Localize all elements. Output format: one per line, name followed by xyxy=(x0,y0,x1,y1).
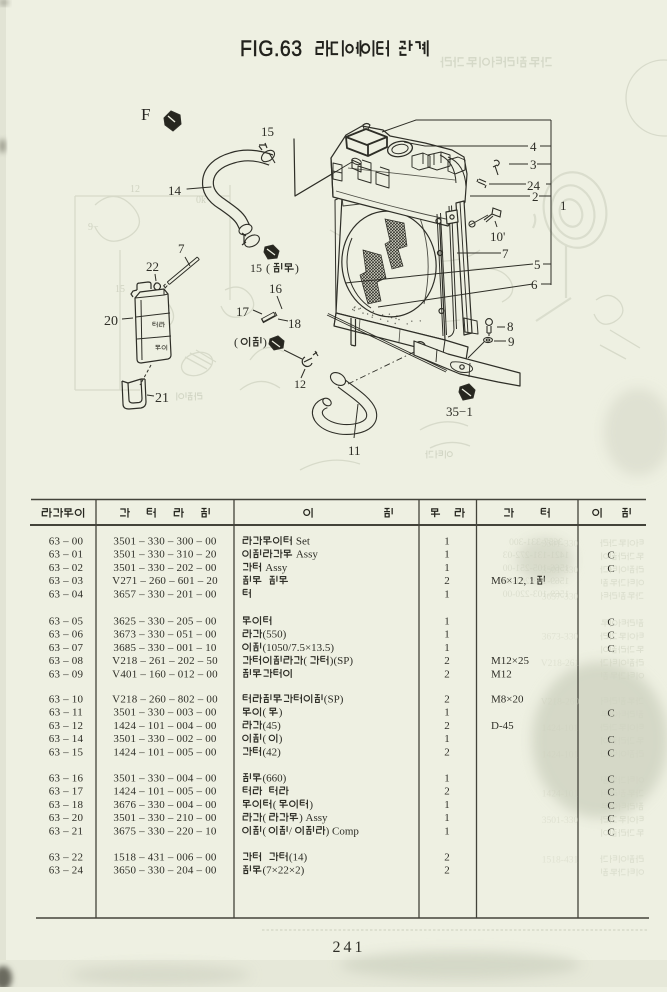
svg-text:1: 1 xyxy=(444,616,450,628)
svg-text:2: 2 xyxy=(444,655,450,667)
svg-text:(42): (42) xyxy=(263,746,282,758)
svg-text:Assy: Assy xyxy=(263,562,288,574)
svg-text:FIG.63: FIG.63 xyxy=(240,37,303,61)
svg-text:1569-103-201-30: 1569-103-201-30 xyxy=(503,577,570,587)
svg-text:63 – 18: 63 – 18 xyxy=(49,799,84,811)
svg-text:1569-103-220-00: 1569-103-220-00 xyxy=(503,590,570,600)
svg-text:7: 7 xyxy=(178,241,185,256)
svg-text:18: 18 xyxy=(288,316,301,331)
svg-text:V218-261: V218-261 xyxy=(541,659,580,669)
svg-text:3501 – 330 – 210 – 00: 3501 – 330 – 210 – 00 xyxy=(113,812,216,824)
svg-text:63 – 11: 63 – 11 xyxy=(49,707,83,719)
svg-text:2: 2 xyxy=(532,189,539,204)
svg-text:2: 2 xyxy=(444,694,450,706)
svg-text:9: 9 xyxy=(508,334,515,349)
svg-text:M12: M12 xyxy=(491,668,512,680)
svg-text:63 – 09: 63 – 09 xyxy=(49,668,84,680)
svg-text:1: 1 xyxy=(444,588,450,600)
svg-text:12: 12 xyxy=(130,184,140,195)
svg-text:2: 2 xyxy=(444,786,450,798)
svg-text:241: 241 xyxy=(333,939,366,956)
svg-text:2: 2 xyxy=(444,668,450,680)
svg-text:) Assy: ) Assy xyxy=(299,812,328,824)
svg-text:3675 – 330 – 220 – 10: 3675 – 330 – 220 – 10 xyxy=(113,825,216,837)
svg-text:D-45: D-45 xyxy=(491,720,514,732)
svg-text:15: 15 xyxy=(250,261,262,275)
svg-text:63 – 07: 63 – 07 xyxy=(49,642,84,654)
svg-text:3625 – 330 – 205 – 00: 3625 – 330 – 205 – 00 xyxy=(113,616,216,628)
svg-text:63 – 20: 63 – 20 xyxy=(49,812,84,824)
svg-text:M8×20: M8×20 xyxy=(491,694,524,706)
svg-text:1: 1 xyxy=(444,799,450,811)
svg-text:): ) xyxy=(309,799,313,811)
svg-text:1: 1 xyxy=(444,642,450,654)
svg-text:): ) xyxy=(263,335,267,349)
svg-text:(7×22×2): (7×22×2) xyxy=(263,865,305,877)
svg-text:1424 – 101 – 005 – 00: 1424 – 101 – 005 – 00 xyxy=(113,786,216,798)
svg-text:63 – 16: 63 – 16 xyxy=(49,773,84,785)
svg-text:1: 1 xyxy=(560,198,567,213)
svg-text:2: 2 xyxy=(444,746,450,758)
svg-text:(: ( xyxy=(273,799,277,811)
svg-text:1424-101: 1424-101 xyxy=(542,750,579,760)
svg-text:4: 4 xyxy=(530,139,537,154)
svg-text:(14): (14) xyxy=(289,852,308,864)
svg-text:35−1: 35−1 xyxy=(446,404,473,419)
svg-text:10': 10' xyxy=(490,229,505,244)
svg-text:3501 – 330 – 202 – 00: 3501 – 330 – 202 – 00 xyxy=(113,562,216,574)
svg-text:63 – 10: 63 – 10 xyxy=(49,694,84,706)
svg-text:3657-331-300: 3657-331-300 xyxy=(509,538,563,548)
svg-text:3: 3 xyxy=(530,157,537,172)
svg-text:3673-330: 3673-330 xyxy=(542,633,579,643)
svg-text:14: 14 xyxy=(168,183,182,198)
svg-text:11: 11 xyxy=(348,443,361,458)
svg-text:1518 – 431 – 006 – 00: 1518 – 431 – 006 – 00 xyxy=(113,852,216,864)
svg-text:F: F xyxy=(141,105,150,124)
svg-text:63 – 00: 63 – 00 xyxy=(49,536,84,548)
svg-text:3501 – 330 – 002 – 00: 3501 – 330 – 002 – 00 xyxy=(113,733,216,745)
svg-text:5: 5 xyxy=(534,257,541,272)
svg-text:3501 – 330 – 310 – 20: 3501 – 330 – 310 – 20 xyxy=(113,549,216,561)
svg-text:20: 20 xyxy=(104,314,118,329)
svg-text:): ) xyxy=(279,707,283,719)
svg-text:63 – 03: 63 – 03 xyxy=(49,575,84,587)
svg-text:7: 7 xyxy=(502,246,509,261)
svg-text:(45): (45) xyxy=(263,720,282,732)
svg-text:): ) xyxy=(279,733,283,745)
svg-text:3657 – 330 – 201 – 00: 3657 – 330 – 201 – 00 xyxy=(113,588,216,600)
svg-text:M12×25: M12×25 xyxy=(491,655,529,667)
svg-text:2: 2 xyxy=(444,575,450,587)
svg-text:1: 1 xyxy=(444,825,450,837)
svg-text:1: 1 xyxy=(444,773,450,785)
svg-text:12: 12 xyxy=(294,377,306,391)
svg-text:0k: 0k xyxy=(196,195,206,206)
svg-text:V218 – 261 – 202 – 50: V218 – 261 – 202 – 50 xyxy=(112,655,218,667)
svg-text:3501 – 330 – 300 – 00: 3501 – 330 – 300 – 00 xyxy=(113,536,216,548)
svg-text:63 – 05: 63 – 05 xyxy=(49,616,84,628)
svg-text:1: 1 xyxy=(444,733,450,745)
svg-text:1: 1 xyxy=(444,549,450,561)
svg-text:3501 – 330 – 003 – 00: 3501 – 330 – 003 – 00 xyxy=(113,707,216,719)
svg-text:Assy: Assy xyxy=(293,549,318,561)
svg-text:1518-431: 1518-431 xyxy=(542,856,579,866)
svg-text:2: 2 xyxy=(444,720,450,732)
svg-text:(660): (660) xyxy=(263,773,287,785)
svg-text:3673 – 330 – 051 – 00: 3673 – 330 – 051 – 00 xyxy=(113,629,216,641)
svg-text:16: 16 xyxy=(269,281,283,296)
svg-text:63 – 22: 63 – 22 xyxy=(49,852,83,864)
svg-text:63 – 04: 63 – 04 xyxy=(49,588,84,600)
svg-text:(1050/7.5×13.5): (1050/7.5×13.5) xyxy=(263,642,335,654)
svg-text:63 – 21: 63 – 21 xyxy=(49,825,83,837)
svg-text:63 – 17: 63 – 17 xyxy=(49,786,84,798)
svg-text:(: ( xyxy=(266,261,270,275)
svg-text:3685 – 330 – 001 – 10: 3685 – 330 – 001 – 10 xyxy=(113,642,216,654)
svg-text:(: ( xyxy=(263,733,267,745)
svg-text:1: 1 xyxy=(444,629,450,641)
svg-text:63 – 12: 63 – 12 xyxy=(49,720,83,732)
svg-text:(SP): (SP) xyxy=(324,694,344,706)
svg-text:1: 1 xyxy=(444,562,450,574)
svg-text:V218 – 260 – 802 – 00: V218 – 260 – 802 – 00 xyxy=(112,694,218,706)
svg-text:V271 – 260 – 601 – 20: V271 – 260 – 601 – 20 xyxy=(112,575,218,587)
svg-text:1421-131-272-03: 1421-131-272-03 xyxy=(503,551,570,561)
svg-text:(: ( xyxy=(263,825,267,837)
svg-text:(: ( xyxy=(303,655,307,667)
svg-text:2: 2 xyxy=(444,865,450,877)
svg-text:(: ( xyxy=(263,707,267,719)
svg-text:6: 6 xyxy=(531,277,538,292)
svg-text:17: 17 xyxy=(236,304,250,319)
svg-text:(550): (550) xyxy=(263,629,287,641)
svg-text:1: 1 xyxy=(444,707,450,719)
svg-text:V218-260: V218-260 xyxy=(541,698,580,708)
svg-text:63 – 08: 63 – 08 xyxy=(49,655,84,667)
svg-text:)(SP): )(SP) xyxy=(330,655,354,667)
svg-text:9−: 9− xyxy=(88,222,99,233)
svg-text:1: 1 xyxy=(444,812,450,824)
svg-text:) Comp: ) Comp xyxy=(326,825,360,837)
svg-text:(: ( xyxy=(234,335,238,349)
svg-text:63 – 06: 63 – 06 xyxy=(49,629,84,641)
svg-text:63 – 02: 63 – 02 xyxy=(49,562,83,574)
svg-text:1566-105-251-00: 1566-105-251-00 xyxy=(503,564,570,574)
svg-text:3650 – 330 – 204 – 00: 3650 – 330 – 204 – 00 xyxy=(113,865,216,877)
svg-text:63 – 15: 63 – 15 xyxy=(49,746,84,758)
svg-text:3501 – 330 – 004 – 00: 3501 – 330 – 004 – 00 xyxy=(113,773,216,785)
svg-text:1424-101: 1424-101 xyxy=(542,790,579,800)
svg-text:V401 – 160 – 012 – 00: V401 – 160 – 012 – 00 xyxy=(112,668,218,680)
svg-text:(: ( xyxy=(263,812,267,824)
svg-text:1424 – 101 – 004 – 00: 1424 – 101 – 004 – 00 xyxy=(113,720,216,732)
svg-text:63 – 24: 63 – 24 xyxy=(49,865,84,877)
svg-text:3501-330: 3501-330 xyxy=(542,816,579,826)
svg-text:3676 – 330 – 004 – 00: 3676 – 330 – 004 – 00 xyxy=(113,799,216,811)
svg-text:15: 15 xyxy=(261,124,274,139)
svg-text:21: 21 xyxy=(155,391,169,406)
svg-text:15: 15 xyxy=(115,284,125,295)
svg-text:22: 22 xyxy=(146,259,159,274)
svg-text:): ) xyxy=(295,261,299,275)
svg-text:1: 1 xyxy=(444,536,450,548)
svg-text:1424 – 101 – 005 – 00: 1424 – 101 – 005 – 00 xyxy=(113,746,216,758)
svg-text:1424-101: 1424-101 xyxy=(542,724,579,734)
svg-text:8: 8 xyxy=(507,319,514,334)
svg-text:2: 2 xyxy=(444,852,450,864)
svg-text:63 – 14: 63 – 14 xyxy=(49,733,84,745)
svg-text:63 – 01: 63 – 01 xyxy=(49,549,83,561)
svg-text:Set: Set xyxy=(293,536,310,548)
